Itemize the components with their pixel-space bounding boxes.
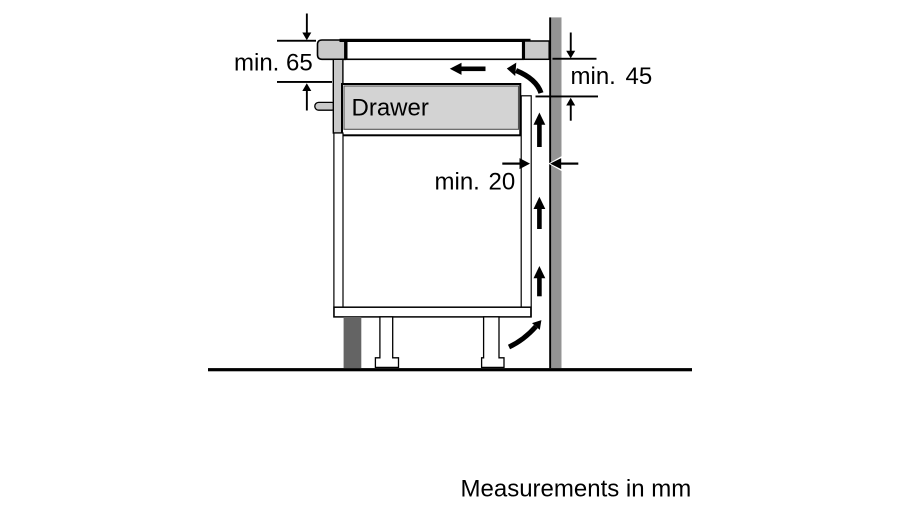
svg-text:Drawer: Drawer bbox=[352, 95, 429, 122]
svg-text:min. 20: min. 20 bbox=[435, 169, 516, 196]
svg-text:min. 45: min. 45 bbox=[571, 63, 653, 90]
svg-text:Measurements in mm: Measurements in mm bbox=[461, 476, 692, 503]
svg-text:min. 65: min. 65 bbox=[234, 50, 313, 77]
